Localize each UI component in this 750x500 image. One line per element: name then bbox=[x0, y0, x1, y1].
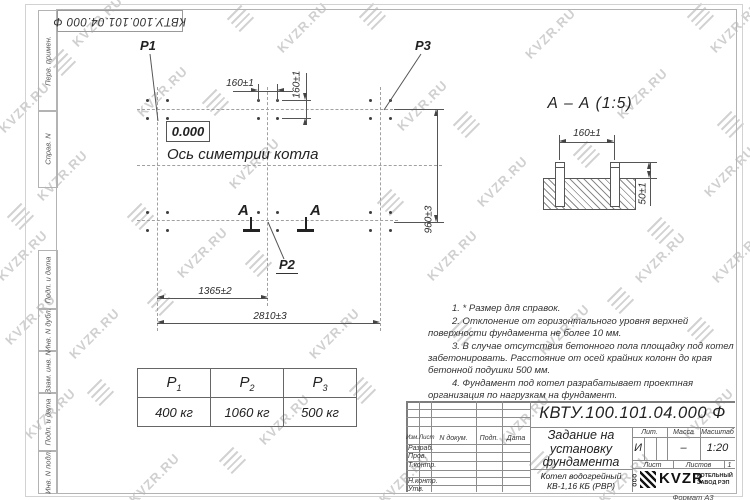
kvzr-logo-icon bbox=[640, 471, 656, 488]
title-block-line bbox=[406, 485, 530, 486]
table-row: 400 кг 1060 кг 500 кг bbox=[138, 398, 357, 427]
dim-arrow bbox=[157, 320, 164, 324]
anchor-bolt-dot bbox=[146, 211, 149, 214]
drawing-sheet: KVZR.RUKVZR.RUKVZR.RUKVZR.RUKVZR.RUKVZR.… bbox=[0, 0, 750, 500]
load-value-p2: 1060 кг bbox=[211, 398, 284, 427]
section-title: А – А (1:5) bbox=[535, 95, 645, 113]
extension-line bbox=[277, 84, 278, 101]
boiler-symmetry-axis-line bbox=[137, 165, 442, 166]
title-block-line bbox=[406, 417, 530, 418]
strip-field-label: Подп. и дата bbox=[44, 257, 53, 304]
section-letter-left: А bbox=[238, 202, 249, 219]
notes-block: 1. * Размер для справок. 2. Отклонение о… bbox=[428, 303, 734, 403]
anchor-bolt-dot bbox=[146, 99, 149, 102]
dim-arrow bbox=[559, 139, 566, 143]
col-doc: N докум. bbox=[431, 435, 476, 442]
anchor-bolt-dot bbox=[276, 211, 279, 214]
extension-line bbox=[394, 222, 444, 223]
load-value-p3: 500 кг bbox=[284, 398, 357, 427]
dim-arrow bbox=[434, 109, 438, 116]
dim-arrow bbox=[647, 162, 651, 169]
point-label-p3: P3 bbox=[415, 38, 431, 53]
strip-field-inv-dubl: Инв. N дубл. bbox=[38, 308, 58, 352]
company-line: КОТЕЛЬНЫЙ bbox=[697, 473, 733, 480]
title-block-line bbox=[406, 470, 530, 471]
strip-field-label: Инв. N дубл. bbox=[44, 308, 53, 351]
dim-arrow bbox=[261, 295, 268, 299]
title-block-line bbox=[406, 426, 530, 427]
drawing-title: Задание на установку фундамента bbox=[530, 429, 632, 470]
strip-field-sprav-n: Справ. N bbox=[38, 110, 58, 188]
anchor-bolt-dot bbox=[369, 117, 372, 120]
extension-line bbox=[620, 162, 657, 163]
anchor-bolt-dot bbox=[166, 117, 169, 120]
section-cut-mark bbox=[243, 229, 260, 232]
lit-value: И bbox=[632, 442, 644, 454]
corner-doc-number-box: КВТУ.100.101.04.000 Ф bbox=[57, 10, 183, 32]
note-item: 1. * Размер для справок. bbox=[428, 303, 734, 315]
title-line: фундамента bbox=[530, 456, 632, 470]
anchor-bolt-dot bbox=[389, 229, 392, 232]
extension-line bbox=[614, 135, 615, 160]
sheet-label: Лист bbox=[632, 462, 673, 469]
strip-field-label: Справ. N bbox=[44, 133, 53, 164]
sheets-label: Листов bbox=[673, 462, 724, 469]
anchor-bolt-dot bbox=[146, 229, 149, 232]
load-table-header-p1: P1 bbox=[138, 369, 211, 398]
title-line: установку bbox=[530, 443, 632, 457]
center-line-middle-column bbox=[267, 87, 268, 306]
product-name: Котел водогрейный КВ-1,16 КБ (РВР) bbox=[530, 472, 632, 491]
logo-ooo-text: ООО bbox=[633, 473, 639, 486]
scale-label: Масштаб bbox=[700, 429, 735, 436]
extension-line bbox=[258, 84, 259, 101]
company-name: КОТЕЛЬНЫЙ ЗАВОД РЭП bbox=[697, 473, 733, 486]
anchor-bolt-dot bbox=[257, 117, 260, 120]
anchor-bolt-dot bbox=[276, 117, 279, 120]
title-line: Задание на bbox=[530, 429, 632, 443]
dim-text-pitch-h: 160±1 bbox=[222, 78, 258, 89]
product-line: КВ-1,16 КБ (РВР) bbox=[530, 482, 632, 492]
anchor-bolt-dot bbox=[369, 211, 372, 214]
anchor-bolt-left bbox=[555, 162, 565, 207]
section-letter-right: А bbox=[310, 202, 321, 219]
anchor-bolt-dot bbox=[276, 229, 279, 232]
dim-text-2810: 2810±3 bbox=[240, 311, 300, 322]
sheets-value: 1 bbox=[724, 462, 735, 469]
dim-text-pitch-v: 160±1 bbox=[292, 65, 303, 105]
load-table-header-p2: P2 bbox=[211, 369, 284, 398]
anchor-bolt-dot bbox=[369, 99, 372, 102]
point-label-p2: P2 bbox=[276, 257, 298, 274]
company-line: ЗАВОД РЭП bbox=[697, 480, 733, 487]
dim-arrow bbox=[373, 320, 380, 324]
dim-line-960 bbox=[437, 109, 438, 222]
col-list: Лист bbox=[419, 435, 431, 441]
point-label-p1: P1 bbox=[140, 38, 156, 53]
title-block-line bbox=[632, 460, 735, 461]
anchor-bolt-right bbox=[610, 162, 620, 207]
strip-field-label: Подп. и дата bbox=[44, 399, 53, 446]
load-value-p1: 400 кг bbox=[138, 398, 211, 427]
title-block-line bbox=[502, 401, 503, 492]
logo-ooo-wrap: ООО bbox=[633, 470, 638, 490]
table-row: P1 P2 P3 bbox=[138, 369, 357, 398]
mass-label: Масса bbox=[667, 429, 700, 436]
section-cut-mark bbox=[297, 229, 314, 232]
scale-value: 1:20 bbox=[700, 442, 735, 454]
strip-field-label: Инв. N подл. bbox=[44, 450, 53, 494]
dim-line-section-160 bbox=[559, 142, 614, 143]
strip-field-vzam-inv: Взам. инв. N bbox=[38, 350, 58, 394]
title-block-line bbox=[644, 437, 645, 460]
col-podp: Подп. bbox=[476, 435, 502, 442]
doc-number: КВТУ.100.101.04.000 Ф bbox=[530, 404, 735, 423]
title-block-border bbox=[406, 401, 735, 403]
anchor-bolt-dot bbox=[166, 211, 169, 214]
lit-label: Лит. bbox=[632, 429, 667, 436]
dim-text-section-160: 160±1 bbox=[562, 128, 612, 139]
anchor-bolt-dot bbox=[257, 211, 260, 214]
dim-line-pitch-h bbox=[233, 91, 293, 92]
strip-field-inv-podl: Инв. N подл. bbox=[38, 450, 58, 494]
center-line-right-column bbox=[380, 87, 381, 331]
load-table: P1 P2 P3 400 кг 1060 кг 500 кг bbox=[137, 368, 357, 427]
row-utv: Утв. bbox=[408, 486, 424, 493]
row-tkontr: Т.контр. bbox=[408, 462, 436, 469]
note-item: 2. Отклонение от горизонтального уровня … bbox=[428, 316, 734, 340]
col-data: Дата bbox=[502, 435, 530, 442]
anchor-bolt-dot bbox=[369, 229, 372, 232]
format-note: Формат А3 bbox=[648, 493, 738, 500]
row-prov: Пров. bbox=[408, 453, 426, 460]
dim-arrow bbox=[607, 139, 614, 143]
anchor-bolt-dot bbox=[389, 99, 392, 102]
dim-line-2810 bbox=[157, 323, 380, 324]
dim-arrow bbox=[157, 295, 164, 299]
anchor-bolt-dot bbox=[166, 229, 169, 232]
note-item: 4. Фундамент под котел разрабатывает про… bbox=[428, 378, 734, 402]
title-block-line bbox=[406, 409, 530, 410]
title-block-line bbox=[632, 437, 735, 438]
dim-text-50: 50±1 bbox=[638, 174, 649, 214]
row-nkontr: Н.контр. bbox=[408, 478, 438, 485]
load-table-header-p3: P3 bbox=[284, 369, 357, 398]
anchor-bolt-dot bbox=[146, 117, 149, 120]
dim-arrow bbox=[303, 93, 307, 100]
strip-field-podp-data-1: Подп. и дата bbox=[38, 250, 58, 310]
col-izm: Изм. bbox=[406, 435, 419, 441]
dim-arrow bbox=[277, 88, 284, 92]
anchor-bolt-dot bbox=[389, 211, 392, 214]
strip-field-podp-data-2: Подп. и дата bbox=[38, 392, 58, 452]
dim-line-1365 bbox=[157, 298, 268, 299]
axis-label: Ось симетрии котла bbox=[167, 146, 318, 163]
title-block-line bbox=[476, 401, 477, 492]
row-razrab: Разраб. bbox=[408, 445, 433, 452]
corner-doc-number: КВТУ.100.101.04.000 Ф bbox=[53, 15, 186, 27]
dim-text-1365: 1365±2 bbox=[190, 286, 240, 297]
dim-text-960: 960±3 bbox=[424, 200, 435, 240]
note-item: 3. В случае отсутствия бетонного пола пл… bbox=[428, 341, 734, 377]
dim-arrow bbox=[303, 118, 307, 125]
elevation-mark: 0.000 bbox=[166, 121, 210, 142]
title-block-line bbox=[656, 437, 657, 460]
mass-value: – bbox=[667, 442, 700, 454]
strip-field-label: Перв. примен. bbox=[44, 36, 53, 86]
anchor-bolt-dot bbox=[166, 99, 169, 102]
anchor-bolt-dot bbox=[389, 117, 392, 120]
dim-arrow bbox=[434, 215, 438, 222]
strip-field-label: Взам. инв. N bbox=[44, 350, 53, 394]
